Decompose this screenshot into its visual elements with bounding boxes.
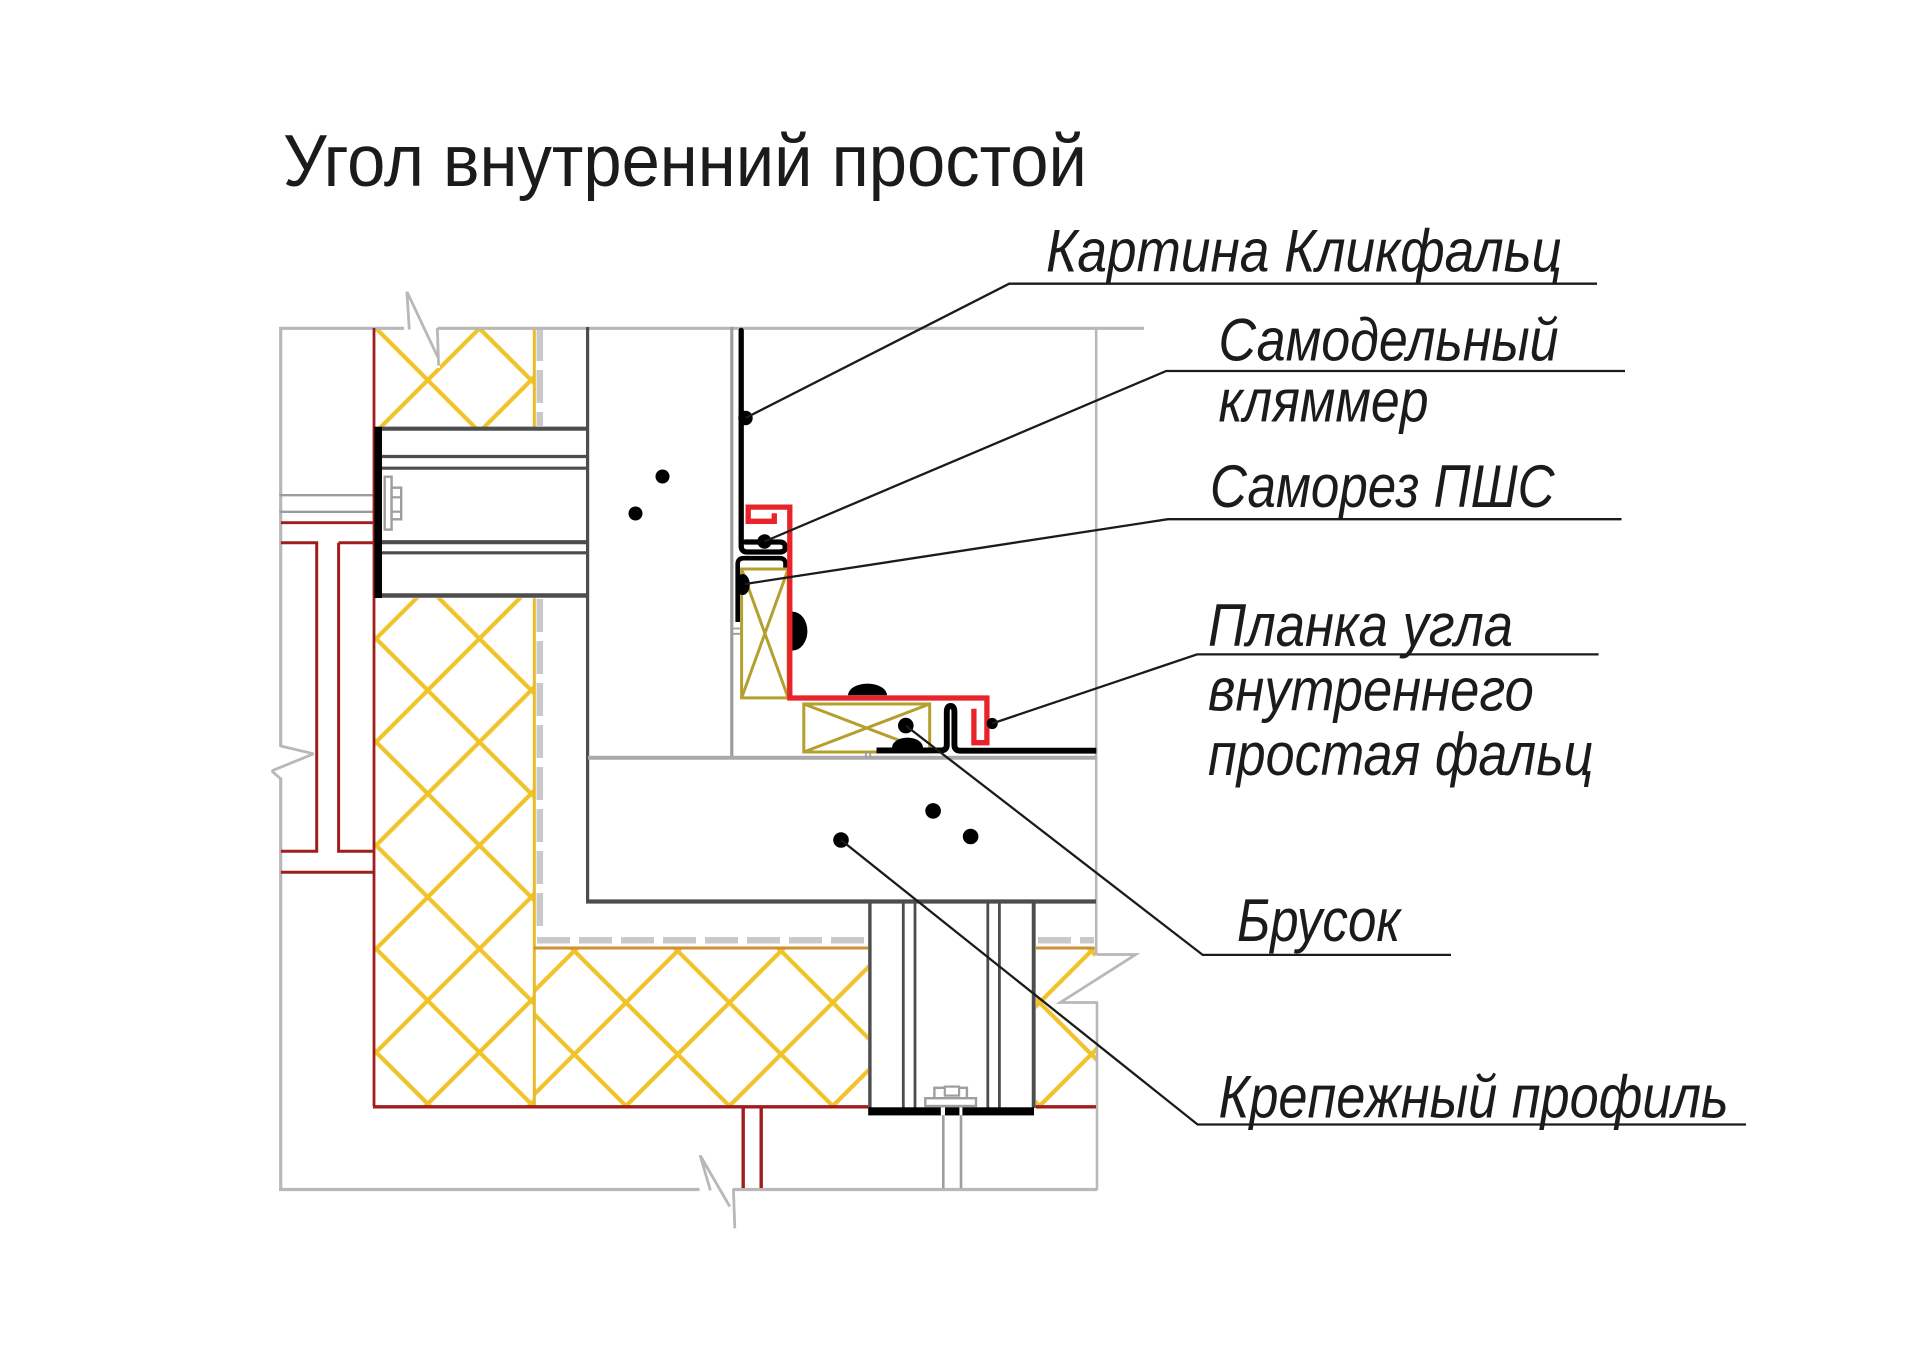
svg-text:простая фальц: простая фальц <box>1208 720 1593 787</box>
svg-text:Брусок: Брусок <box>1237 887 1403 954</box>
svg-text:Самодельный: Самодельный <box>1219 306 1559 373</box>
svg-text:Саморез ПШС: Саморез ПШС <box>1210 453 1555 520</box>
svg-text:Планка угла: Планка угла <box>1208 592 1513 659</box>
svg-text:Угол внутренний простой: Угол внутренний простой <box>283 121 1087 202</box>
svg-text:Картина Кликфальц: Картина Кликфальц <box>1046 219 1562 286</box>
svg-text:Крепежный профиль: Крепежный профиль <box>1219 1063 1729 1130</box>
svg-text:кляммер: кляммер <box>1219 367 1429 434</box>
svg-text:внутреннего: внутреннего <box>1208 656 1534 723</box>
